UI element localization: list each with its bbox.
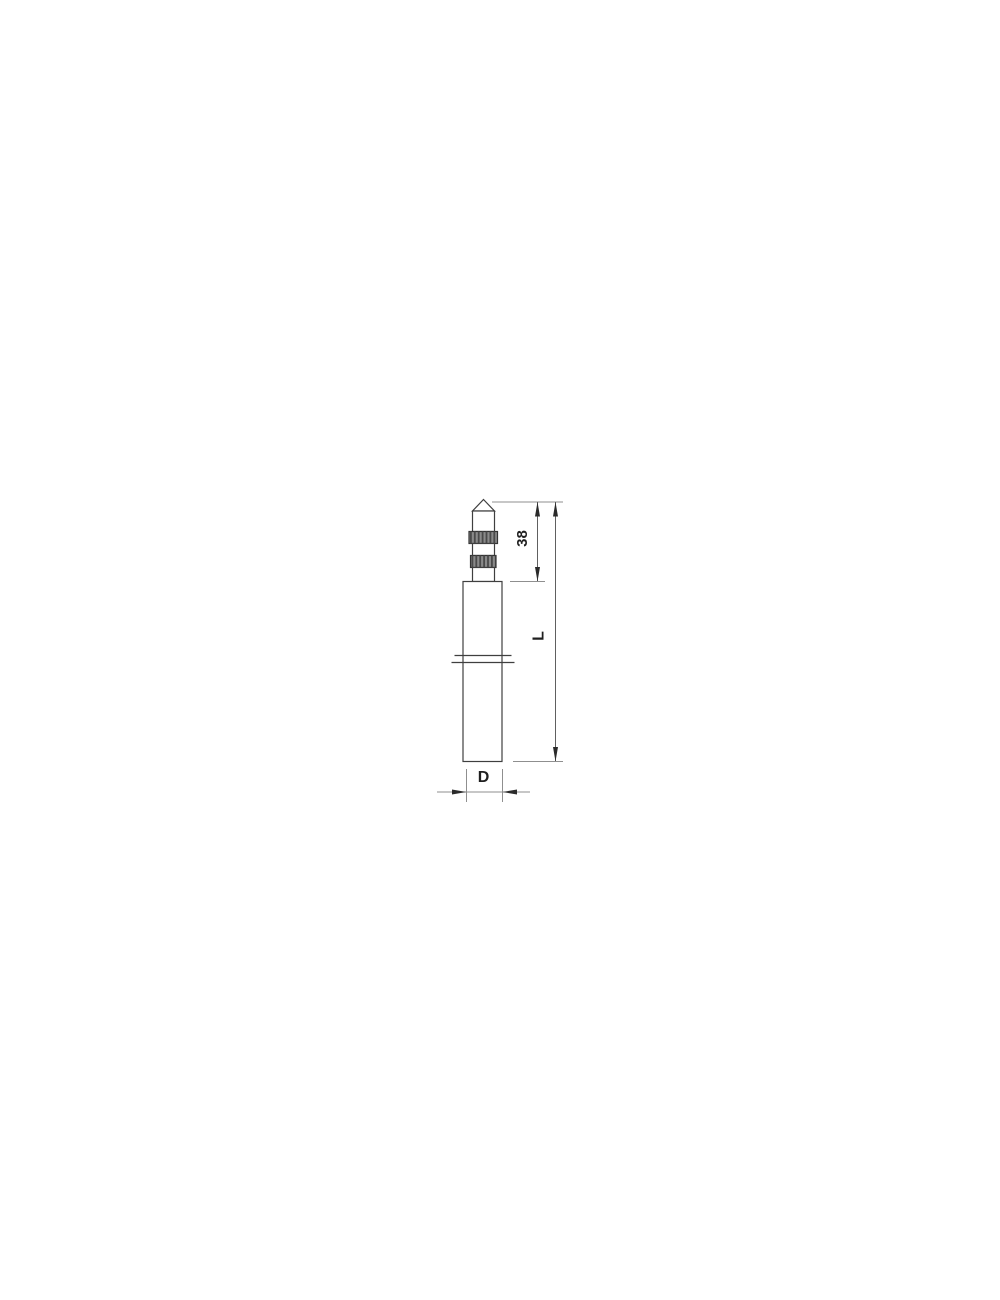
dimension-38-arrow-up-icon [535, 502, 540, 517]
rod-upper-shaft [473, 511, 495, 532]
technical-drawing-rod: 38 L D [0, 0, 1000, 1300]
rod-cone-tip [473, 500, 495, 512]
dimension-D-arrow-left-icon [503, 790, 518, 795]
knurled-band-bottom [471, 556, 497, 568]
rod-shaft-spacer [473, 544, 495, 556]
dimension-38-label: 38 [514, 530, 531, 547]
dimension-D: D [437, 769, 530, 802]
dimension-L-arrow-up-icon [553, 502, 558, 517]
dimension-L-arrow-down-icon [553, 747, 558, 762]
drawing-page: 38 L D [0, 0, 1000, 1300]
dimension-L-label: L [531, 631, 548, 641]
dimension-D-arrow-right-icon [452, 790, 467, 795]
rod-main-body [463, 582, 502, 762]
dimension-D-label: D [478, 769, 490, 786]
rod-neck [473, 568, 495, 582]
dimension-38-arrow-down-icon [535, 567, 540, 582]
dimension-38: 38 [510, 502, 545, 582]
knurled-band-top [469, 532, 498, 544]
